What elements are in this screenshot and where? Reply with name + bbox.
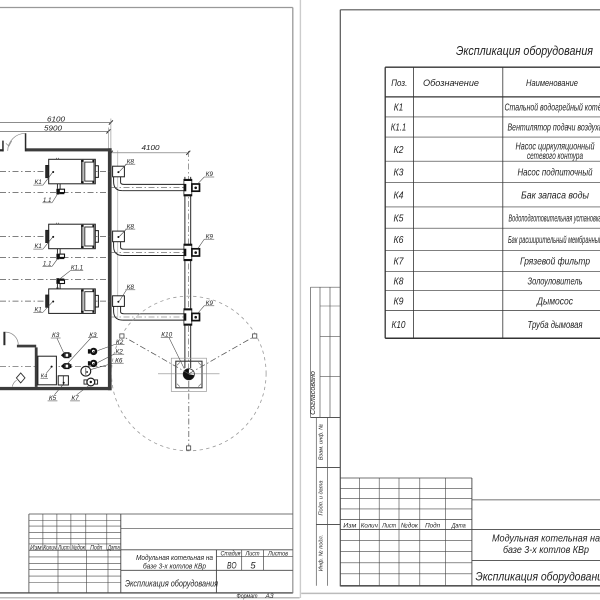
svg-text:К6: К6 <box>394 235 404 246</box>
svg-text:базе 3-х котлов КВр: базе 3-х котлов КВр <box>143 562 206 571</box>
svg-text:ВО: ВО <box>227 559 237 570</box>
svg-text:К3: К3 <box>394 167 404 178</box>
svg-text:Подп. и дата: Подп. и дата <box>319 480 325 515</box>
svg-text:Дата: Дата <box>107 544 120 551</box>
svg-text:Колич: Колич <box>361 523 378 530</box>
svg-text:Лист: Лист <box>57 544 69 551</box>
svg-text:Подп: Подп <box>425 522 440 530</box>
svg-text:Листов: Листов <box>267 551 289 558</box>
svg-text:Инф. № подл.: Инф. № подл. <box>319 535 325 571</box>
svg-text:Водоподготовительная установка: Водоподготовительная установка <box>509 213 600 224</box>
svg-text:Лист: Лист <box>245 551 260 558</box>
svg-text:Стадия: Стадия <box>221 551 242 558</box>
svg-text:Золоуловитель: Золоуловитель <box>528 277 583 288</box>
svg-text:К9: К9 <box>394 296 404 307</box>
svg-text:Дымосос: Дымосос <box>536 296 573 307</box>
svg-text:Колич: Колич <box>43 544 57 551</box>
svg-text:№док: №док <box>72 544 86 551</box>
svg-text:Изм: Изм <box>30 544 42 551</box>
svg-text:Бак расширительный мембранный: Бак расширительный мембранный <box>508 234 600 246</box>
svg-text:Поз.: Поз. <box>391 78 407 89</box>
svg-text:5900: 5900 <box>44 123 63 132</box>
svg-text:Дата: Дата <box>451 523 466 530</box>
svg-text:К5: К5 <box>394 213 404 224</box>
svg-text:Взам. инф. №: Взам. инф. № <box>319 424 325 460</box>
svg-text:К4: К4 <box>41 374 47 380</box>
svg-text:Формат: Формат <box>237 593 259 600</box>
svg-text:5: 5 <box>250 559 256 570</box>
svg-text:Стальной водогрейный котёл: Стальной водогрейный котёл <box>505 103 600 114</box>
svg-text:К8: К8 <box>394 277 404 288</box>
svg-text:Изм: Изм <box>343 523 356 530</box>
svg-text:К1: К1 <box>394 103 404 114</box>
svg-text:К7: К7 <box>394 257 405 268</box>
svg-text:Согласовано: Согласовано <box>308 371 317 415</box>
svg-text:Грязевой фильтр: Грязевой фильтр <box>520 256 590 268</box>
svg-text:Подп: Подп <box>90 544 102 551</box>
svg-text:Вентилятор подачи воздуха: Вентилятор подачи воздуха <box>508 123 600 134</box>
svg-text:Труба дымовая: Труба дымовая <box>528 319 583 331</box>
svg-text:№док: №док <box>401 522 419 530</box>
svg-text:4100: 4100 <box>142 143 161 152</box>
svg-text:Бак запаса воды: Бак запаса воды <box>521 190 590 201</box>
svg-text:Лист: Лист <box>381 523 396 530</box>
svg-text:сетевого контура: сетевого контура <box>527 151 583 162</box>
svg-text:К4: К4 <box>394 190 404 201</box>
svg-text:Наименование: Наименование <box>526 78 578 89</box>
svg-text:6100: 6100 <box>47 114 66 123</box>
svg-text:Экспликация оборудования: Экспликация оборудования <box>476 570 600 583</box>
svg-text:Насос подпиточный: Насос подпиточный <box>518 167 593 178</box>
svg-text:Обозначение: Обозначение <box>423 78 479 89</box>
svg-text:К10: К10 <box>392 320 406 331</box>
svg-text:Экспликация оборудования: Экспликация оборудования <box>125 579 218 590</box>
svg-text:К2: К2 <box>394 145 404 156</box>
svg-text:К1.1: К1.1 <box>391 123 406 134</box>
svg-text:А3: А3 <box>264 593 273 600</box>
svg-text:базе 3-х котлов КВр: базе 3-х котлов КВр <box>503 544 589 556</box>
svg-text:Модульная котельная на: Модульная котельная на <box>492 534 600 545</box>
svg-text:Экспликация оборудования: Экспликация оборудования <box>456 44 593 58</box>
